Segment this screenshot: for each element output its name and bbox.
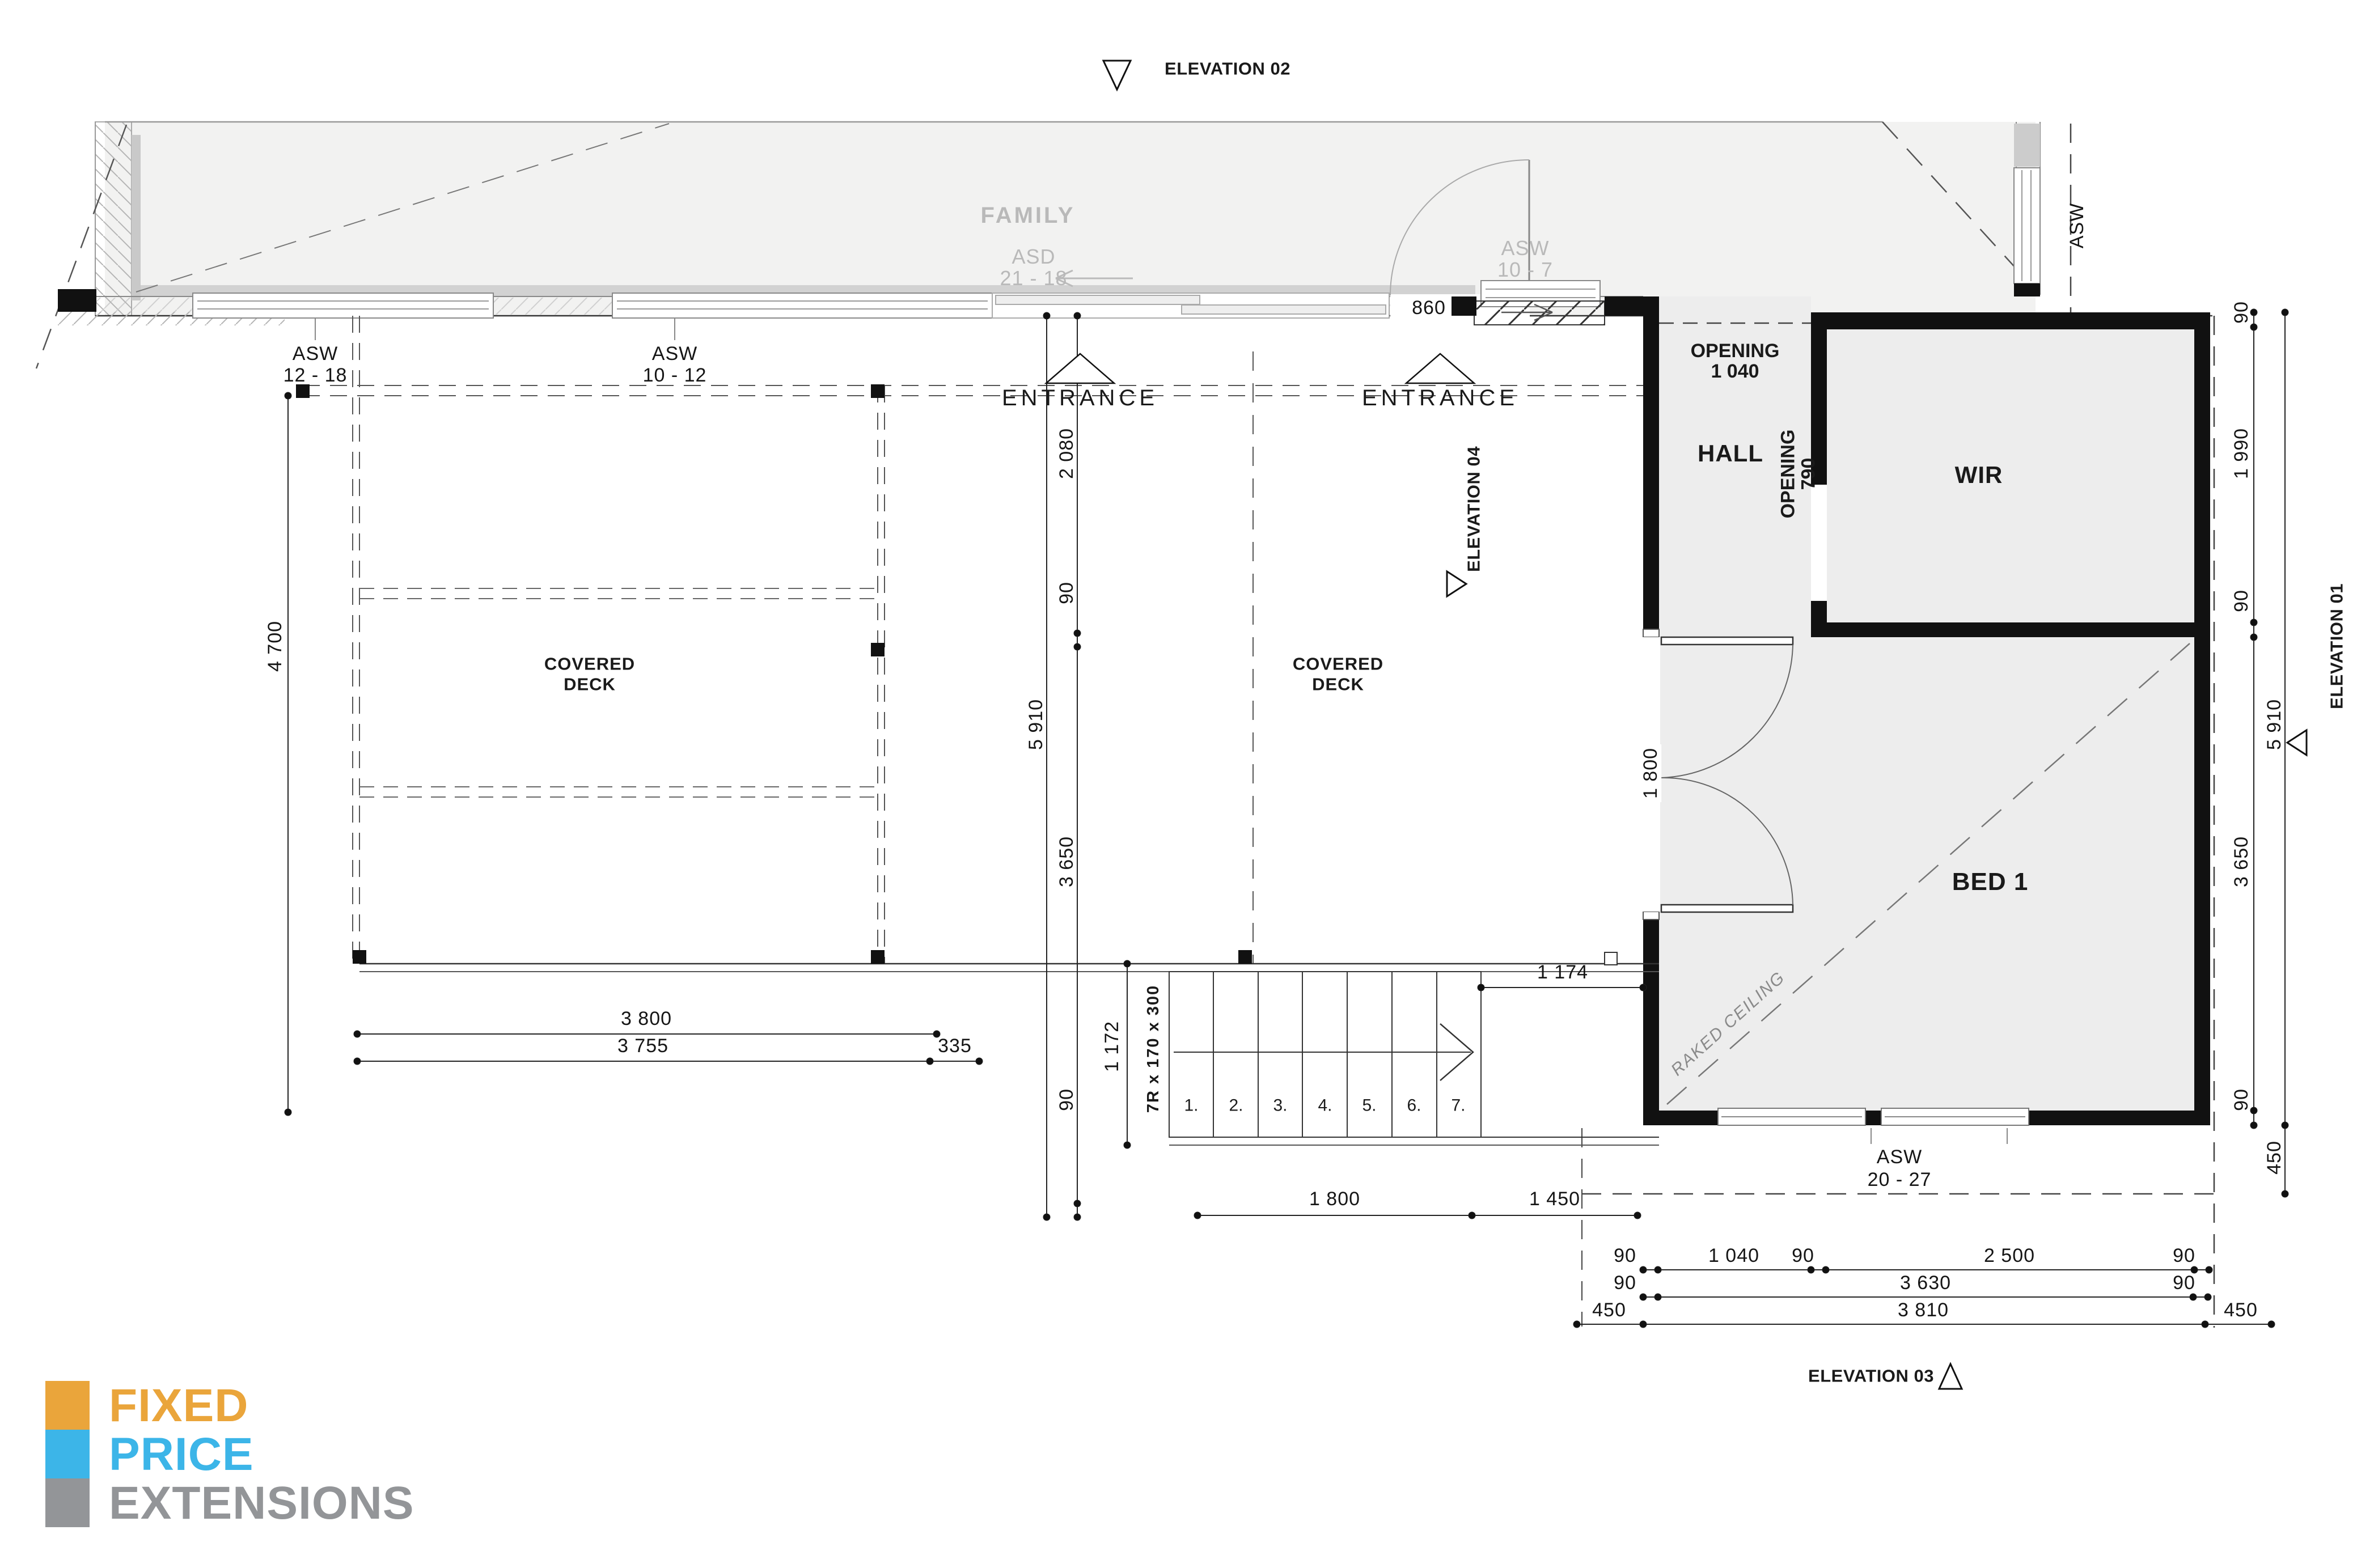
room-label-hall: HALL [1698,441,1763,466]
window-label-asw-20-27-size: 20 - 27 [1868,1170,1932,1190]
elevation-01-triangle-icon [2287,730,2307,755]
room-label-bed1: BED 1 [1952,869,2029,895]
door-label-asd-size: 21 - 18 [1000,268,1067,289]
dim-3630-row2: 3 630 [1900,1273,1951,1294]
extension-room-fills [1659,296,2194,1111]
stair-step-1: 1. [1184,1096,1198,1114]
dim-3800: 3 800 [621,1009,672,1029]
dim-1040-row1: 1 040 [1708,1246,1759,1266]
logo-square-blue [45,1430,90,1478]
dim-3650-centre: 3 650 [1057,836,1077,887]
room-label-deck1-line1: COVERED [544,655,635,674]
window-label-asw-10-7-size: 10 - 7 [1497,259,1553,281]
window-label-asw-12-18-size: 12 - 18 [283,366,348,386]
dim-2500-row1: 2 500 [1984,1246,2035,1266]
opening-790-label: OPENING 790 [1778,430,1818,519]
opening-790-line1: OPENING [1778,430,1799,519]
elevation-04-triangle-icon [1447,571,1466,596]
dim-90-row1-c: 90 [2173,1246,2195,1266]
dim-450-right: 450 [2265,1141,2285,1175]
dim-1172: 1 172 [1102,1021,1123,1072]
dim-1174: 1 174 [1537,963,1588,983]
stairs-linework [1169,972,1659,1145]
dim-3755: 3 755 [617,1036,668,1057]
stair-step-6: 6. [1407,1096,1421,1114]
dim-450-row3-a: 450 [1592,1300,1626,1321]
dim-1800-door: 1 800 [1641,744,1661,802]
logo-text-price: PRICE [109,1428,254,1481]
dim-1450: 1 450 [1529,1189,1580,1210]
opening-1040-size: 1 040 [1711,362,1759,382]
dim-90-centre-top: 90 [1057,582,1077,604]
elevation-03-triangle-icon [1939,1364,1962,1389]
dim-3810-row3: 3 810 [1898,1300,1949,1321]
room-label-deck2-line1: COVERED [1293,655,1383,674]
entrance-1-label: ENTRANCE [1002,386,1158,410]
entrance-2-label: ENTRANCE [1362,386,1518,410]
dim-90-centre-bottom: 90 [1057,1088,1077,1111]
room-label-deck1-line2: DECK [564,676,616,694]
dim-3650-right: 3 650 [2232,836,2252,887]
dim-450-row3-b: 450 [2224,1300,2258,1321]
dim-90-right-3: 90 [2232,1088,2252,1111]
asw-6-8-line1: ASW [2067,203,2088,248]
dim-90-row1-b: 90 [1792,1246,1814,1266]
elevation-03-label: ELEVATION 03 [1808,1367,1934,1386]
dim-2080: 2 080 [1057,428,1077,479]
dim-90-right-2: 90 [2232,590,2252,612]
logo-text-fixed: FIXED [109,1379,248,1433]
entrance-1-triangle-icon [1046,354,1114,383]
dim-90-row2-b: 90 [2173,1273,2195,1294]
logo-square-gray [45,1478,90,1527]
floorplan-sheet: ELEVATION 02 FAMILY ASD 21 - 18 ASW 10 -… [0,0,2357,1568]
window-label-asw-10-12: ASW [652,344,697,365]
dim-1800-bottom: 1 800 [1309,1189,1360,1210]
dim-90-right-1: 90 [2232,301,2252,324]
elevation-04-label: ELEVATION 04 [1465,446,1484,572]
stair-step-5: 5. [1362,1096,1376,1114]
room-label-wir: WIR [1955,463,2003,488]
entrance-2-triangle-icon [1406,354,1474,383]
dim-4700: 4 700 [265,621,286,672]
room-label-family: FAMILY [981,204,1076,227]
floorplan-linework [0,0,2357,1568]
dim-860: 860 [1410,298,1448,319]
opening-790-line2: 790 [1799,430,1819,519]
stair-step-3: 3. [1273,1096,1287,1114]
opening-1040-label: OPENING [1691,341,1780,362]
dim-335: 335 [938,1036,972,1057]
dim-1990: 1 990 [2232,428,2252,479]
deck-linework [296,316,1659,972]
logo-text-extensions: EXTENSIONS [109,1477,414,1530]
stair-step-7: 7. [1451,1096,1465,1114]
elevation-02-label: ELEVATION 02 [1165,60,1290,79]
window-label-asw-10-7: ASW [1501,238,1549,259]
room-label-deck2-line2: DECK [1312,676,1364,694]
logo-square-orange [45,1381,90,1430]
dim-5910-centre: 5 910 [1026,699,1047,750]
window-label-asw-10-12-size: 10 - 12 [643,366,707,386]
window-label-asw-12-18: ASW [293,344,338,365]
stair-step-2: 2. [1229,1096,1243,1114]
door-label-asd: ASD [1012,246,1055,268]
dim-90-row1-a: 90 [1614,1246,1636,1266]
window-label-asw-20-27: ASW [1877,1147,1922,1168]
elevation-02-triangle-icon [1103,61,1131,90]
stair-note: 7R x 170 x 300 [1145,985,1162,1113]
window-label-asw-6-8: ASW [2067,203,2088,248]
dim-90-row2-a: 90 [1614,1273,1636,1294]
elevation-01-label: ELEVATION 01 [2328,583,2347,709]
dim-5910-right: 5 910 [2265,699,2285,750]
stair-step-4: 4. [1318,1096,1332,1114]
